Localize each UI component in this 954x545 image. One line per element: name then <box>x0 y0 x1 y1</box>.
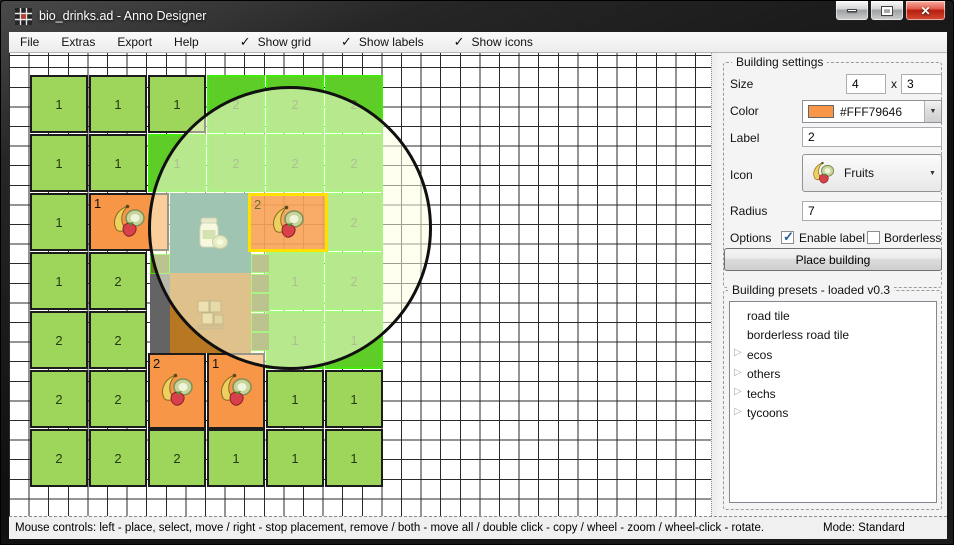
maximize-icon <box>882 7 892 15</box>
building-green-1[interactable]: 1 <box>325 429 383 487</box>
group-title: Building presets - loaded v0.3 <box>728 283 894 297</box>
building-green-2[interactable]: 2 <box>30 311 88 369</box>
close-icon: ✕ <box>920 4 930 18</box>
status-bar: Mouse controls: left - place, select, mo… <box>9 516 947 539</box>
building-label: 1 <box>291 451 298 466</box>
toggle-show-labels[interactable]: Show labels <box>341 34 424 50</box>
mouse-controls-text: Mouse controls: left - place, select, mo… <box>15 522 764 534</box>
design-canvas[interactable]: 111222111222112121222112122112221112 <box>9 53 711 516</box>
menu-extras[interactable]: Extras <box>50 32 106 52</box>
radius-label: Radius <box>730 204 767 218</box>
building-label: 2 <box>173 451 180 466</box>
building-green-2[interactable]: 2 <box>89 252 147 310</box>
building-selected-2[interactable]: 2 <box>248 193 328 252</box>
fruits-combo-icon <box>810 160 837 187</box>
building-green-1[interactable]: 1 <box>266 429 324 487</box>
label-input[interactable] <box>802 127 942 147</box>
building-green-1[interactable]: 1 <box>89 75 147 133</box>
fruits-icon <box>109 202 149 242</box>
building-label: 2 <box>153 356 160 371</box>
fruits-icon <box>157 371 197 411</box>
menu-file[interactable]: File <box>9 32 50 52</box>
building-label: 2 <box>114 451 121 466</box>
size-label: Size <box>730 77 753 91</box>
icon-label: Icon <box>730 168 753 182</box>
building-label: 2 <box>254 197 261 212</box>
size-width-input[interactable] <box>846 74 886 94</box>
toggle-show-icons[interactable]: Show icons <box>454 34 533 50</box>
label-label: Label <box>730 131 759 145</box>
chevron-down-icon[interactable] <box>924 101 941 122</box>
building-green-1[interactable]: 1 <box>89 134 147 192</box>
check-icon <box>454 34 465 50</box>
building-green-1[interactable]: 1 <box>207 429 265 487</box>
enable-label-checkbox[interactable] <box>781 231 794 244</box>
building-green-1[interactable]: 1 <box>30 75 88 133</box>
expander-icon[interactable] <box>734 367 742 378</box>
size-height-input[interactable] <box>901 74 942 94</box>
icon-combobox[interactable]: Fruits <box>802 154 942 192</box>
building-green-1[interactable]: 1 <box>266 370 324 428</box>
fruits-icon <box>268 203 308 243</box>
preset-tycoons[interactable]: tycoons <box>730 404 936 424</box>
building-green-1[interactable]: 1 <box>30 252 88 310</box>
building-label: 1 <box>55 215 62 230</box>
building-label: 1 <box>232 451 239 466</box>
building-green-2[interactable]: 2 <box>30 370 88 428</box>
chevron-down-icon[interactable] <box>924 155 941 191</box>
building-green-2[interactable]: 2 <box>89 429 147 487</box>
options-label: Options <box>730 231 771 245</box>
check-icon <box>240 34 251 50</box>
borderless-text: Borderless <box>884 231 941 245</box>
mode-indicator: Mode: Standard <box>823 522 905 534</box>
building-presets-group: Building presets - loaded v0.3 road tile… <box>723 290 942 510</box>
building-label: 1 <box>55 156 62 171</box>
building-green-2[interactable]: 2 <box>30 429 88 487</box>
app-window: bio_drinks.ad - Anno Designer ✕ File Ext… <box>0 0 954 545</box>
building-green-2[interactable]: 2 <box>89 311 147 369</box>
building-green-2[interactable]: 2 <box>89 370 147 428</box>
preset-borderless-road-tile[interactable]: borderless road tile <box>730 326 936 346</box>
building-label: 2 <box>55 451 62 466</box>
fruits-icon <box>216 371 256 411</box>
minimize-icon <box>847 9 857 12</box>
preset-techs[interactable]: techs <box>730 384 936 404</box>
building-label: 1 <box>94 196 101 211</box>
expander-icon[interactable] <box>734 386 742 397</box>
color-label: Color <box>730 104 759 118</box>
menu-export[interactable]: Export <box>106 32 163 52</box>
color-swatch <box>808 105 834 118</box>
building-label: 1 <box>212 356 219 371</box>
building-label: 1 <box>350 392 357 407</box>
window-title: bio_drinks.ad - Anno Designer <box>39 9 206 23</box>
close-button[interactable]: ✕ <box>905 1 946 21</box>
app-icon <box>15 8 32 25</box>
maximize-button[interactable] <box>870 1 904 21</box>
color-value: #FFF79646 <box>840 105 902 119</box>
building-label: 1 <box>173 97 180 112</box>
building-label: 1 <box>114 97 121 112</box>
building-label: 2 <box>55 333 62 348</box>
building-label: 1 <box>291 392 298 407</box>
preset-others[interactable]: others <box>730 365 936 385</box>
building-green-1[interactable]: 1 <box>30 193 88 251</box>
building-green-1[interactable]: 1 <box>325 370 383 428</box>
expander-icon[interactable] <box>734 406 742 417</box>
building-label: 1 <box>114 156 121 171</box>
settings-panel: Building settings Size x Color #FFF79646… <box>717 53 947 516</box>
title-bar[interactable]: bio_drinks.ad - Anno Designer ✕ <box>1 1 953 32</box>
building-label: 1 <box>55 97 62 112</box>
menu-help[interactable]: Help <box>163 32 210 52</box>
building-label: 2 <box>55 392 62 407</box>
group-title: Building settings <box>732 55 827 69</box>
place-building-button[interactable]: Place building <box>724 248 942 271</box>
building-label: 2 <box>114 274 121 289</box>
building-label: 2 <box>114 392 121 407</box>
expander-icon[interactable] <box>734 347 742 358</box>
building-label: 2 <box>114 333 121 348</box>
preset-ecos[interactable]: ecos <box>730 345 936 365</box>
borderless-checkbox[interactable] <box>867 231 880 244</box>
check-icon <box>341 34 352 50</box>
building-orange-2[interactable]: 2 <box>148 353 206 429</box>
building-label: 1 <box>55 274 62 289</box>
building-green-1[interactable]: 1 <box>30 134 88 192</box>
toggle-show-grid[interactable]: Show grid <box>240 34 311 50</box>
icon-value: Fruits <box>844 166 874 180</box>
enable-label-text: Enable label <box>799 231 865 245</box>
presets-list[interactable]: road tile borderless road tile ecos othe… <box>729 301 937 503</box>
building-green-2[interactable]: 2 <box>148 429 206 487</box>
minimize-button[interactable] <box>835 1 869 21</box>
building-label: 1 <box>350 451 357 466</box>
building-settings-group: Building settings Size x Color #FFF79646… <box>723 62 942 288</box>
preset-road-tile[interactable]: road tile <box>730 306 936 326</box>
menu-bar: File Extras Export Help Show grid Show l… <box>9 32 947 53</box>
size-separator: x <box>891 77 897 91</box>
color-combobox[interactable]: #FFF79646 <box>802 100 942 123</box>
radius-input[interactable] <box>802 201 942 221</box>
